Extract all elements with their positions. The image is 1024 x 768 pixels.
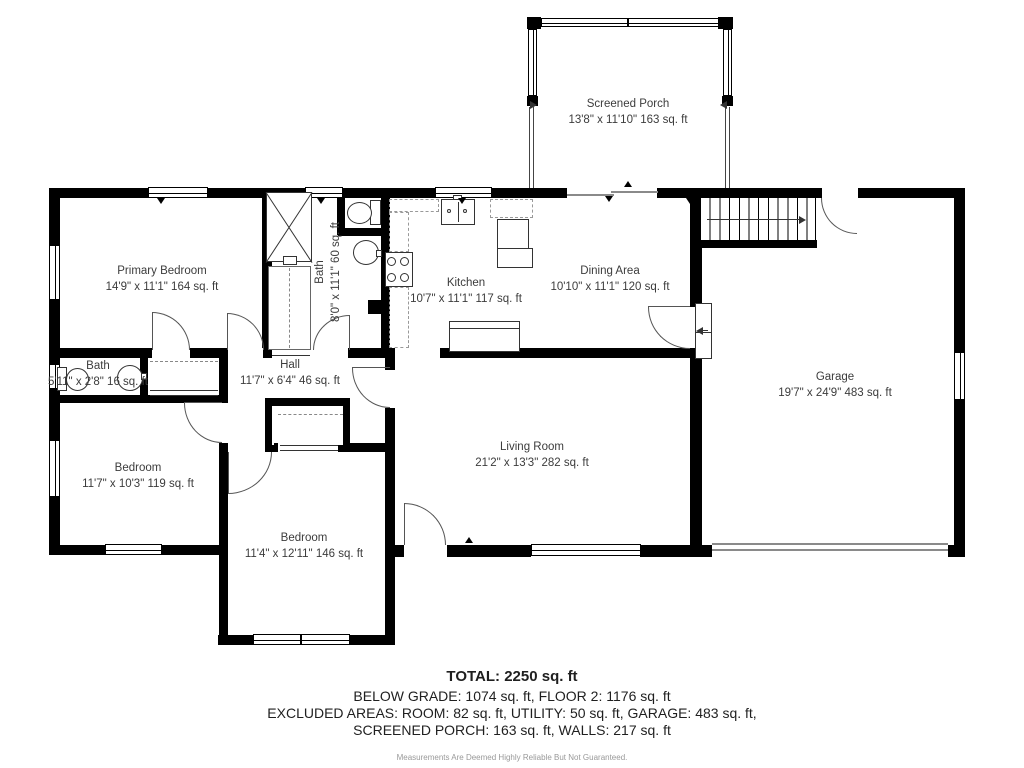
window-pane-line	[149, 193, 207, 194]
stove-burner	[387, 273, 396, 282]
window-pane-line	[542, 23, 718, 24]
wall-segment	[657, 188, 822, 198]
room-name: Primary Bedroom	[106, 263, 219, 279]
window-pane-line	[55, 441, 56, 496]
stove-burner	[387, 257, 396, 266]
wall-segment	[718, 17, 733, 29]
room-name: Bedroom	[245, 530, 363, 546]
wall-segment	[162, 545, 225, 555]
room-name: Dining Area	[550, 263, 669, 279]
door-arc	[184, 403, 222, 443]
door-arc	[228, 452, 272, 494]
window	[301, 634, 350, 645]
room-label-bedroom-bottom: Bedroom 11'4" x 12'11" 146 sq. ft	[245, 530, 363, 562]
door-leaf	[227, 313, 228, 350]
counter-dashed	[389, 212, 409, 252]
window-pane-line	[302, 640, 349, 641]
wall-segment	[348, 348, 390, 358]
window	[531, 544, 641, 556]
room-name: Bath	[312, 222, 328, 322]
landing-arrow-head	[696, 327, 703, 335]
direction-marker	[157, 198, 165, 204]
door-arc	[404, 503, 446, 545]
wall-segment	[447, 545, 531, 557]
room-label-bedroom-left: Bedroom 11'7" x 10'3" 119 sq. ft	[82, 460, 194, 492]
summary-grade-line: BELOW GRADE: 1074 sq. ft, FLOOR 2: 1176 …	[0, 688, 1024, 704]
closet-shelf-dashed-line	[278, 414, 343, 415]
wall-segment	[385, 557, 395, 645]
wall-segment	[954, 188, 965, 352]
room-label-dining-area: Dining Area 10'10" x 11'1" 120 sq. ft	[550, 263, 669, 295]
peninsula-line	[450, 328, 519, 329]
door-arc	[352, 368, 390, 408]
kitchen-sink-divider	[458, 202, 459, 222]
island-counter	[497, 219, 529, 249]
direction-marker	[624, 181, 632, 187]
door-leaf	[648, 306, 690, 307]
direction-marker	[720, 101, 727, 109]
wall-segment	[49, 545, 105, 555]
door-leaf	[352, 367, 390, 368]
window	[49, 440, 60, 497]
room-name: Bedroom	[82, 460, 194, 476]
stair-arrow-head	[799, 216, 806, 224]
summary-excluded-line: EXCLUDED AREAS: ROOM: 82 sq. ft, UTILITY…	[0, 705, 1024, 721]
window-pane-line	[533, 30, 534, 95]
wall-segment	[390, 545, 404, 557]
wall-segment	[218, 635, 253, 645]
room-label-garage: Garage 19'7" x 24'9" 483 sq. ft	[778, 369, 892, 401]
window	[723, 29, 732, 96]
wall-segment	[49, 188, 60, 245]
room-dims: 11'4" x 12'11" 146 sq. ft	[245, 546, 363, 562]
window-pane-line	[106, 550, 161, 551]
room-label-screened-porch: Screened Porch 13'8" x 11'10" 163 sq. ft	[568, 96, 687, 128]
room-name: Living Room	[475, 439, 589, 455]
room-name: Bath	[48, 358, 148, 374]
wall-segment	[265, 398, 350, 406]
direction-marker	[686, 198, 694, 204]
room-dims: 14'9" x 11'1" 164 sq. ft	[106, 279, 219, 295]
counter-dashed	[389, 199, 439, 212]
sink-tap	[376, 250, 382, 257]
room-name: Screened Porch	[568, 96, 687, 112]
window-pane-line	[960, 353, 961, 399]
window-pane-line	[728, 30, 729, 95]
wall-segment	[858, 188, 965, 198]
stove-burner	[400, 273, 409, 282]
wall-segment	[697, 240, 817, 248]
wall-segment	[492, 188, 567, 198]
closet-door	[280, 445, 338, 451]
wardrobe-dashed-line	[289, 268, 290, 348]
stove-burner	[400, 257, 409, 266]
window-pane-line	[532, 550, 640, 551]
window	[435, 187, 492, 198]
room-dims: 11'7" x 10'3" 119 sq. ft	[82, 476, 194, 492]
wall-segment	[350, 635, 395, 645]
wall-segment	[49, 348, 152, 358]
wall-segment	[385, 408, 395, 557]
door-arc	[227, 313, 264, 350]
garage-door	[712, 543, 948, 551]
kitchen-sink-drain	[447, 209, 451, 213]
door-arc	[821, 198, 857, 234]
direction-marker	[530, 101, 537, 109]
room-label-kitchen: Kitchen 10'7" x 11'1" 117 sq. ft	[410, 275, 522, 307]
stair-arrow-line	[707, 219, 799, 220]
wall-segment	[49, 188, 148, 198]
room-name: Kitchen	[410, 275, 522, 291]
door-leaf	[228, 452, 229, 494]
room-dims: 19'7" x 24'9" 483 sq. ft	[778, 385, 892, 401]
room-dims: 8'0" x 11'1" 60 sq. ft	[328, 222, 344, 322]
window-pane-line	[436, 193, 491, 194]
wall-segment	[338, 228, 387, 236]
room-label-hall: Hall 11'7" x 6'4" 46 sq. ft	[240, 357, 340, 389]
door-leaf	[404, 503, 405, 545]
porch-rail	[725, 107, 730, 188]
room-dims: 13'8" x 11'10" 163 sq. ft	[568, 112, 687, 128]
summary-total: TOTAL: 2250 sq. ft	[0, 668, 1024, 685]
room-name: Garage	[778, 369, 892, 385]
counter-dashed	[389, 287, 409, 348]
island-counter	[497, 248, 533, 268]
room-label-primary-bedroom: Primary Bedroom 14'9" x 11'1" 164 sq. ft	[106, 263, 219, 295]
room-label-bath-small: Bath 5'11" x 2'8" 16 sq. ft	[48, 358, 148, 390]
counter-dashed	[490, 199, 533, 218]
room-dims: 5'11" x 2'8" 16 sq. ft	[48, 374, 148, 390]
wall-segment	[954, 400, 965, 555]
wall-segment	[527, 17, 541, 29]
direction-marker	[465, 537, 473, 543]
wall-segment	[274, 443, 278, 452]
room-dims: 11'7" x 6'4" 46 sq. ft	[240, 373, 340, 389]
room-dims: 10'10" x 11'1" 120 sq. ft	[550, 279, 669, 295]
window	[105, 544, 162, 555]
sliding-door	[611, 191, 658, 193]
direction-marker	[317, 198, 325, 204]
window-pane-line	[55, 246, 56, 299]
room-dims: 21'2" x 13'3" 282 sq. ft	[475, 455, 589, 471]
room-label-living-room: Living Room 21'2" x 13'3" 282 sq. ft	[475, 439, 589, 471]
door-leaf	[152, 312, 153, 350]
wall-segment	[690, 352, 702, 555]
kitchen-sink-drain	[463, 209, 467, 213]
toilet-bowl	[347, 202, 372, 224]
closet-shelf-dashed-line	[150, 361, 218, 362]
window	[49, 245, 60, 300]
room-name: Hall	[240, 357, 340, 373]
closet-door	[150, 390, 218, 396]
summary-excluded-line2: SCREENED PORCH: 163 sq. ft, WALLS: 217 s…	[0, 722, 1024, 738]
wall-segment	[219, 443, 228, 645]
porch-rail	[529, 107, 534, 188]
door-arc	[648, 307, 690, 349]
summary-disclaimer: Measurements Are Deemed Highly Reliable …	[0, 753, 1024, 762]
window	[541, 18, 719, 27]
window	[528, 29, 537, 96]
door-leaf	[184, 402, 222, 403]
wall-segment	[948, 545, 965, 557]
direction-marker	[458, 198, 466, 204]
window	[148, 187, 208, 198]
window	[954, 352, 965, 400]
window-pane-line	[254, 640, 300, 641]
door-leaf	[349, 315, 350, 350]
window	[253, 634, 301, 645]
shower-head	[283, 256, 297, 265]
direction-marker	[605, 196, 613, 202]
room-label-bath-main: Bath 8'0" x 11'1" 60 sq. ft	[312, 222, 344, 322]
wall-segment	[219, 350, 228, 403]
window-mullion	[627, 18, 629, 27]
room-dims: 10'7" x 11'1" 117 sq. ft	[410, 291, 522, 307]
closet-door	[272, 349, 310, 356]
floor-plan-page: Screened Porch 13'8" x 11'10" 163 sq. ft…	[0, 0, 1024, 768]
peninsula-counter	[449, 321, 520, 352]
wall-segment	[368, 300, 388, 314]
door-arc	[152, 312, 190, 350]
